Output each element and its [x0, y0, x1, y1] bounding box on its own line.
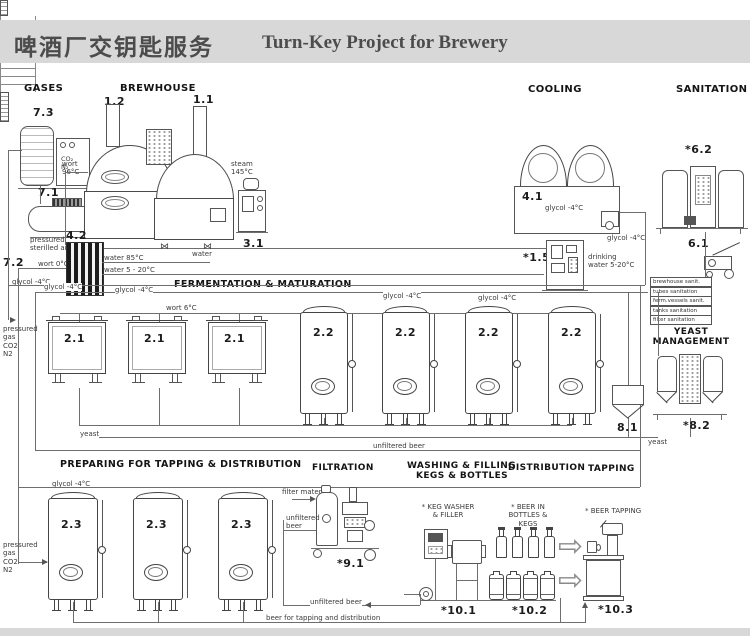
- leg: [387, 414, 392, 424]
- foot: [132, 382, 145, 383]
- fan-circle-icon: [528, 153, 558, 183]
- panel-buttons: [428, 546, 443, 554]
- steam-generator-panel: [242, 196, 254, 212]
- feed-line: [404, 594, 419, 595]
- unit-module: [551, 263, 565, 273]
- nozzle: [132, 316, 140, 321]
- tag-cip-station: *6.2: [685, 143, 712, 156]
- base-line: [486, 600, 556, 601]
- leg: [171, 600, 176, 610]
- section-tapping: TAPPING: [588, 464, 635, 474]
- open-fermenter: 2.1: [128, 316, 190, 386]
- bright-beer-tank: 2.3: [133, 492, 193, 618]
- bright-beer-tank: 2.3: [218, 492, 278, 618]
- leg: [86, 600, 91, 610]
- label-steam: steam 145°C: [231, 160, 253, 177]
- yeast-control-panel: [679, 354, 701, 404]
- unfiltered-beer-line: [35, 450, 640, 451]
- leg: [224, 600, 229, 610]
- arrow-icon: [582, 599, 588, 608]
- label-glycol: glycol -4°C: [383, 292, 421, 300]
- mug-handle-icon: [596, 544, 601, 551]
- leg: [419, 414, 424, 424]
- cip-tank: [718, 170, 744, 228]
- tag-glycol-unit: 4.1: [522, 190, 543, 203]
- foot: [52, 610, 61, 611]
- foot: [169, 382, 182, 383]
- yeast-propagation-tank: [703, 356, 723, 392]
- gauge-icon: [322, 514, 331, 523]
- valve-icon: [513, 360, 521, 368]
- leg: [139, 600, 144, 610]
- bottle: [512, 527, 523, 558]
- section-washing-2: KEGS & BOTTLES: [416, 471, 508, 481]
- foot: [484, 424, 493, 425]
- brewhouse-control-panel: [146, 129, 172, 165]
- tap-column: [607, 535, 618, 556]
- keg: [540, 574, 555, 600]
- cip-panel-dots: [695, 175, 711, 205]
- keg: [523, 574, 538, 600]
- manway-oval-inner: [63, 567, 78, 577]
- leg: [305, 414, 310, 424]
- foot: [169, 610, 178, 611]
- leg: [321, 414, 326, 424]
- sterile-filter: [0, 0, 8, 16]
- sanitation-item: filter sanitation: [650, 315, 712, 325]
- maturation-tank: 2.2: [300, 306, 360, 432]
- tag-gas-tank: 7.3: [33, 106, 54, 119]
- valve-icon: [183, 546, 191, 554]
- pipe-line: [658, 292, 659, 356]
- pipe-line: [283, 520, 284, 605]
- leg: [337, 414, 342, 424]
- gauge-icon: [257, 196, 263, 202]
- bottle: [544, 527, 555, 558]
- tag-yeast-tank: 8.1: [617, 421, 638, 434]
- foot: [222, 610, 231, 611]
- page-title-chinese: 啤酒厂交钥匙服务: [14, 28, 214, 62]
- chimney: [193, 106, 207, 157]
- tag-bright-tank: 2.3: [146, 518, 167, 531]
- keg-band: [524, 594, 537, 595]
- gauge-icon: [60, 142, 66, 148]
- manway-oval-inner: [148, 567, 163, 577]
- leg: [456, 564, 457, 600]
- base-line: [653, 414, 727, 415]
- label-wort6: wort 6°C: [166, 304, 197, 312]
- pump-icon: [423, 591, 429, 597]
- water85-line: [102, 262, 210, 263]
- bottle-body: [544, 536, 555, 558]
- foot: [212, 382, 225, 383]
- leg: [657, 414, 658, 420]
- valve-icon: [98, 546, 106, 554]
- tag-beer-tapping: *10.3: [598, 603, 633, 616]
- keg-band: [541, 578, 554, 579]
- keg-chime: [527, 571, 534, 575]
- unit-module: [551, 245, 563, 259]
- nozzle: [174, 316, 182, 321]
- keg: [506, 574, 521, 600]
- pipe-line: [35, 292, 36, 450]
- page-title-english: Turn-Key Project for Brewery: [262, 32, 508, 54]
- vessel-cap: [481, 545, 486, 558]
- open-fermenter: 2.1: [48, 316, 110, 386]
- section-gases: GASES: [24, 83, 63, 94]
- tap-tower-top: [602, 523, 623, 535]
- feed-line: [560, 598, 561, 622]
- leg: [660, 228, 661, 234]
- leg: [135, 374, 141, 382]
- leg: [470, 414, 475, 424]
- keg-chime: [544, 571, 551, 575]
- bottle-body: [496, 536, 507, 558]
- label-beer-tapping: * BEER TAPPING: [585, 507, 641, 515]
- filter-block: [344, 517, 366, 528]
- pipe-line: [18, 268, 19, 564]
- valve-icon: ⋈: [160, 243, 169, 252]
- glycol-pipe: [645, 212, 646, 285]
- manway-oval-inner: [480, 381, 495, 391]
- tag-ccv-tank: 2.2: [561, 326, 582, 339]
- base-line: [236, 232, 268, 233]
- tank-shell: [218, 498, 268, 600]
- label-pressured-gas: pressured gas CO2 N2: [3, 541, 38, 575]
- kettle-door: [210, 208, 226, 222]
- foot: [583, 424, 592, 425]
- unit-module: [566, 245, 577, 253]
- drop-line: [158, 602, 159, 622]
- manway-oval-inner: [563, 381, 578, 391]
- section-filtration: FILTRATION: [312, 463, 374, 473]
- keg-chime: [510, 571, 517, 575]
- pump-icon: [605, 221, 614, 230]
- label-unfiltered: unfiltered beer: [373, 442, 425, 450]
- leg: [569, 414, 574, 424]
- keg-band: [541, 594, 554, 595]
- pipe-line: [640, 450, 641, 487]
- label-glycol: glycol -4°C: [115, 286, 153, 294]
- tag-beer-filter: *9.1: [337, 557, 364, 570]
- keg-band: [490, 594, 503, 595]
- label-pressured-gas: pressured gas CO2 N2: [3, 325, 38, 359]
- cone-line: [666, 391, 677, 402]
- section-cooling: COOLING: [528, 84, 582, 95]
- fan-circle-icon: [575, 153, 605, 183]
- keg-chime: [493, 571, 500, 575]
- maturation-tank: 2.2: [548, 306, 608, 432]
- chimney: [106, 104, 120, 147]
- tag-brew-kettle: 1.1: [193, 93, 214, 106]
- base-line: [420, 600, 486, 601]
- valve-icon: [348, 360, 356, 368]
- gas-cylinder: [20, 126, 54, 186]
- manway-oval-inner: [315, 381, 330, 391]
- label-beer-distribution: beer for tapping and distribution: [266, 614, 380, 622]
- leg: [502, 414, 507, 424]
- base-line: [542, 290, 588, 291]
- keg-band: [507, 594, 520, 595]
- panel-pole: [435, 559, 436, 600]
- glycol-pipe: [620, 212, 645, 213]
- valve-icon: [268, 546, 276, 554]
- leg: [585, 414, 590, 424]
- leg: [740, 228, 741, 234]
- glycol-main-line: [8, 285, 645, 286]
- foot: [84, 610, 93, 611]
- open-fermenter: 2.1: [208, 316, 270, 386]
- sanitation-item: ferm.vessels sanit.: [650, 296, 712, 306]
- leg: [256, 600, 261, 610]
- unit-module: [568, 257, 578, 273]
- tag-wort-cooler: 4.2: [66, 229, 87, 242]
- section-brewhouse: BREWHOUSE: [120, 83, 196, 94]
- filter-block: [347, 530, 363, 542]
- section-preparing: PREPARING FOR TAPPING & DISTRIBUTION: [60, 459, 302, 470]
- pipe-line: [283, 530, 316, 531]
- drop-line: [239, 388, 240, 425]
- leg: [92, 374, 98, 382]
- cone-line: [712, 391, 723, 402]
- tag-bright-tank: 2.3: [231, 518, 252, 531]
- frame-bar: [456, 580, 477, 581]
- tag-ccv-tank: 2.2: [313, 326, 334, 339]
- distribution-arrow-icon: ⇨: [558, 566, 583, 596]
- drop-line: [73, 602, 74, 622]
- tank-shell: [48, 498, 98, 600]
- label-keg-washer: * KEG WASHER & FILLER: [420, 503, 476, 520]
- yeast-propagation-tank: [657, 356, 677, 392]
- bottom-band: [0, 628, 750, 636]
- foot: [319, 424, 328, 425]
- wort-line: [65, 172, 66, 245]
- wheel-icon: [364, 549, 376, 561]
- filter-pillar: [349, 487, 357, 502]
- nozzle: [212, 316, 220, 321]
- foot: [417, 424, 426, 425]
- keg: [489, 574, 504, 600]
- manway-oval-inner: [105, 173, 125, 181]
- trolley-handle: [712, 242, 740, 256]
- foot: [468, 424, 477, 425]
- foot: [52, 382, 65, 383]
- label-glycol: glycol -4°C: [478, 294, 516, 302]
- brewery-diagram: 啤酒厂交钥匙服务 Turn-Key Project for Brewery GA…: [0, 0, 750, 636]
- sanitation-item: tubes sanitation: [650, 287, 712, 297]
- leg: [215, 374, 221, 382]
- leg: [477, 564, 478, 600]
- tag-yeast-management: *8.2: [683, 419, 710, 432]
- feed-line: [292, 499, 312, 500]
- drop-line: [159, 388, 160, 425]
- label-unfiltered: unfiltered beer: [310, 598, 362, 606]
- pipe-line: [40, 186, 41, 204]
- label-yeast: yeast: [80, 430, 99, 438]
- foot: [567, 424, 576, 425]
- pump-icon: [364, 520, 375, 531]
- feed-line: [420, 594, 421, 605]
- sanitation-item: brewhouse sanit.: [650, 277, 712, 287]
- filter-block: [342, 502, 368, 515]
- valve-icon: [596, 360, 604, 368]
- section-washing-1: WASHING & FILLING: [407, 461, 516, 471]
- leg: [54, 600, 59, 610]
- vessel-cap: [447, 545, 452, 558]
- cip-pump: [684, 216, 696, 225]
- keg-washer-vessel: [452, 540, 482, 564]
- pipe-line: [18, 268, 66, 269]
- label-water: water: [192, 250, 212, 258]
- valve-icon: [430, 360, 438, 368]
- wort-line: [65, 172, 88, 173]
- section-distribution: DISTRIBUTION: [508, 463, 585, 473]
- tag-open-fermenter: 2.1: [224, 332, 245, 345]
- yeast-tank: [612, 385, 644, 405]
- tag-ccv-tank: 2.2: [478, 326, 499, 339]
- label-glycol: glycol -4°C: [545, 204, 583, 212]
- manway-oval-inner: [105, 199, 125, 207]
- counter-flange: [583, 596, 624, 601]
- tag-open-fermenter: 2.1: [64, 332, 85, 345]
- foot: [254, 610, 263, 611]
- steam-generator-top: [243, 178, 259, 190]
- tag-ccv-tank: 2.2: [395, 326, 416, 339]
- foot: [249, 382, 262, 383]
- label-yeast: yeast: [648, 438, 667, 446]
- label-glycol: glycol -4°C: [607, 234, 645, 242]
- pipe-line: [628, 292, 629, 385]
- water520-line: [102, 274, 544, 275]
- leg: [172, 374, 178, 382]
- foot: [385, 424, 394, 425]
- pipe-line: [640, 285, 641, 450]
- tag-packaged-beer: *10.2: [512, 604, 547, 617]
- section-sanitation: SANITATION: [676, 84, 747, 95]
- bottle-body: [528, 536, 539, 558]
- section-yeast-management: YEAST MANAGEMENT: [650, 327, 732, 347]
- leg: [55, 374, 61, 382]
- leg: [403, 414, 408, 424]
- gauge-icon: [257, 205, 263, 211]
- pipe-line: [8, 150, 9, 320]
- nozzle: [94, 316, 102, 321]
- maturation-tank: 2.2: [382, 306, 442, 432]
- leg: [486, 414, 491, 424]
- keg-band: [507, 578, 520, 579]
- tag-keg-washer: *10.1: [441, 604, 476, 617]
- nozzle: [52, 316, 60, 321]
- label-pressured-air: pressured sterilled air: [30, 236, 70, 253]
- arrow-icon: [362, 602, 371, 608]
- bottle-body: [512, 536, 523, 558]
- yeast-line: [80, 437, 658, 438]
- leg: [553, 414, 558, 424]
- pipe-line: [8, 150, 22, 151]
- manway-oval-inner: [397, 381, 412, 391]
- bottle: [528, 527, 539, 558]
- label-glycol: glycol -4°C: [44, 283, 82, 291]
- foot: [335, 424, 344, 425]
- leg: [252, 374, 258, 382]
- sanitation-item: tanks sanitation: [650, 306, 712, 316]
- drop-line: [243, 602, 244, 622]
- keg-band: [524, 578, 537, 579]
- label-beer-in: * BEER IN BOTTLES & KEGS: [500, 503, 556, 528]
- panel-screen: [428, 533, 443, 542]
- wheel-icon: [724, 269, 734, 279]
- foot: [401, 424, 410, 425]
- leg: [721, 414, 722, 420]
- foot: [89, 382, 102, 383]
- sanitation-line: [705, 232, 706, 277]
- maturation-tank: 2.2: [465, 306, 525, 432]
- drop-line: [79, 388, 80, 425]
- cip-ladder: [0, 92, 9, 122]
- foot: [137, 610, 146, 611]
- bottle: [496, 527, 507, 558]
- pump-icon: [708, 259, 716, 267]
- tank-shell: [133, 498, 183, 600]
- manway-oval-inner: [233, 567, 248, 577]
- keg-band: [490, 578, 503, 579]
- tag-open-fermenter: 2.1: [144, 332, 165, 345]
- foot: [551, 424, 560, 425]
- foot: [303, 424, 312, 425]
- cone-line: [627, 404, 644, 418]
- tapping-counter: [586, 560, 621, 596]
- label-drinking-water: drinking water 5-20°C: [588, 253, 634, 270]
- nozzle: [254, 316, 262, 321]
- gauge-icon: [69, 142, 75, 148]
- base-line: [656, 228, 748, 229]
- tag-bright-tank: 2.3: [61, 518, 82, 531]
- bright-beer-tank: 2.3: [48, 492, 108, 618]
- foot: [500, 424, 509, 425]
- label-unfiltered-2l: unfiltered beer: [286, 514, 320, 531]
- distribution-arrow-icon: ⇨: [558, 532, 583, 562]
- wheel-icon: [313, 549, 322, 558]
